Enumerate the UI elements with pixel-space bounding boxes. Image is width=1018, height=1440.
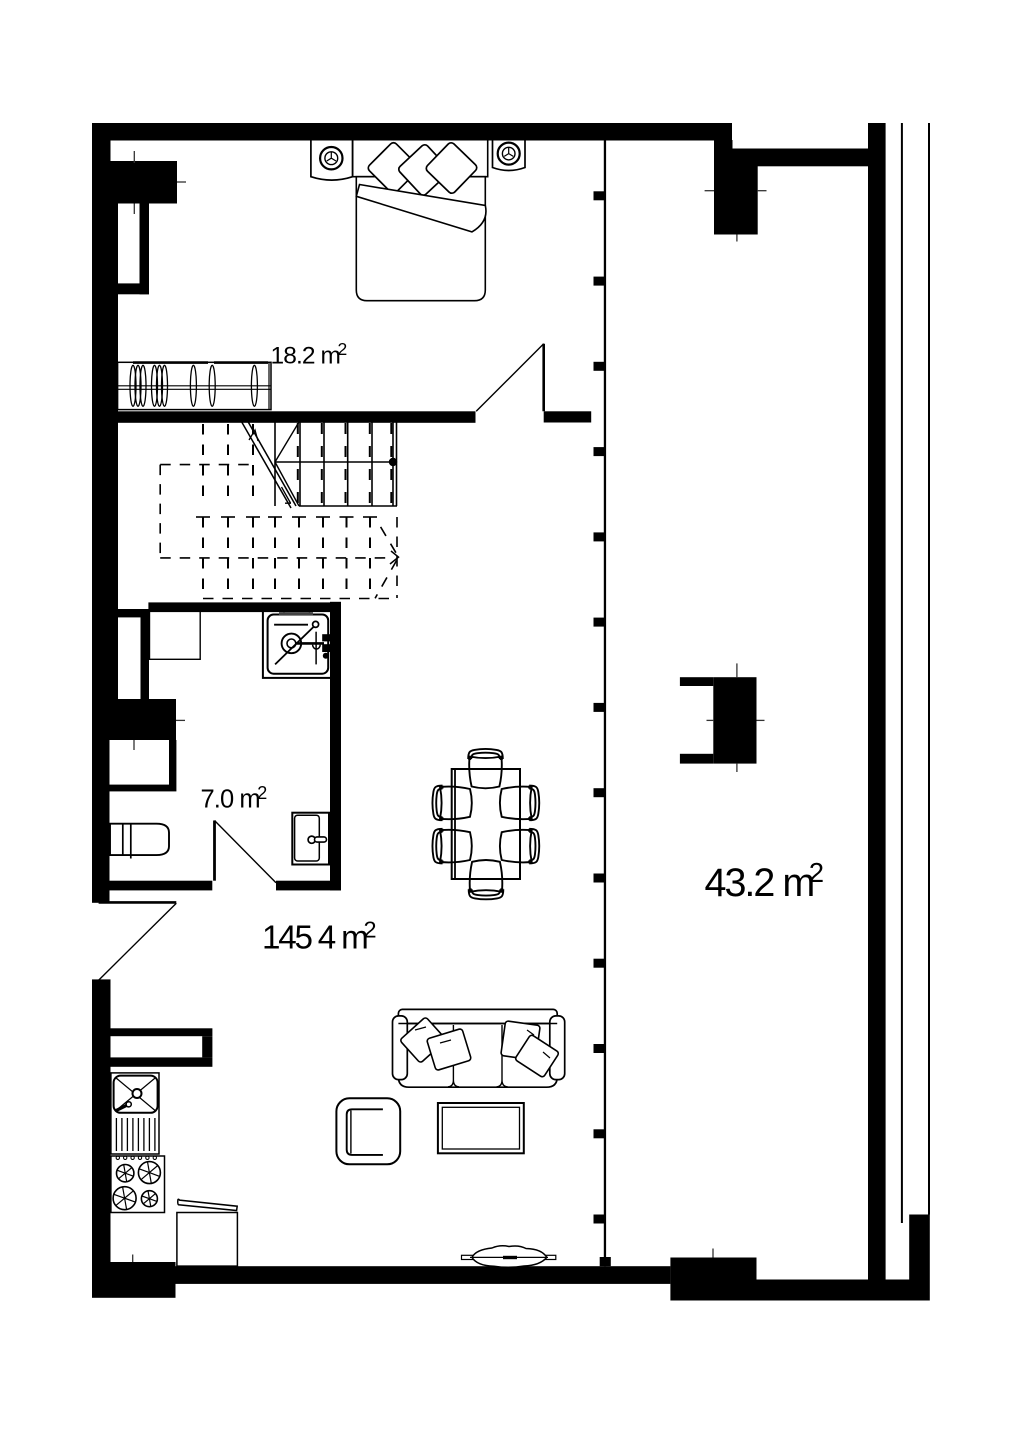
- svg-text:18.2 m2: 18.2 m2: [271, 339, 347, 370]
- svg-text:43.2 m2: 43.2 m2: [705, 857, 823, 905]
- svg-text:7.0 m2: 7.0 m2: [201, 783, 268, 814]
- svg-text:145 4 m2: 145 4 m2: [262, 917, 376, 957]
